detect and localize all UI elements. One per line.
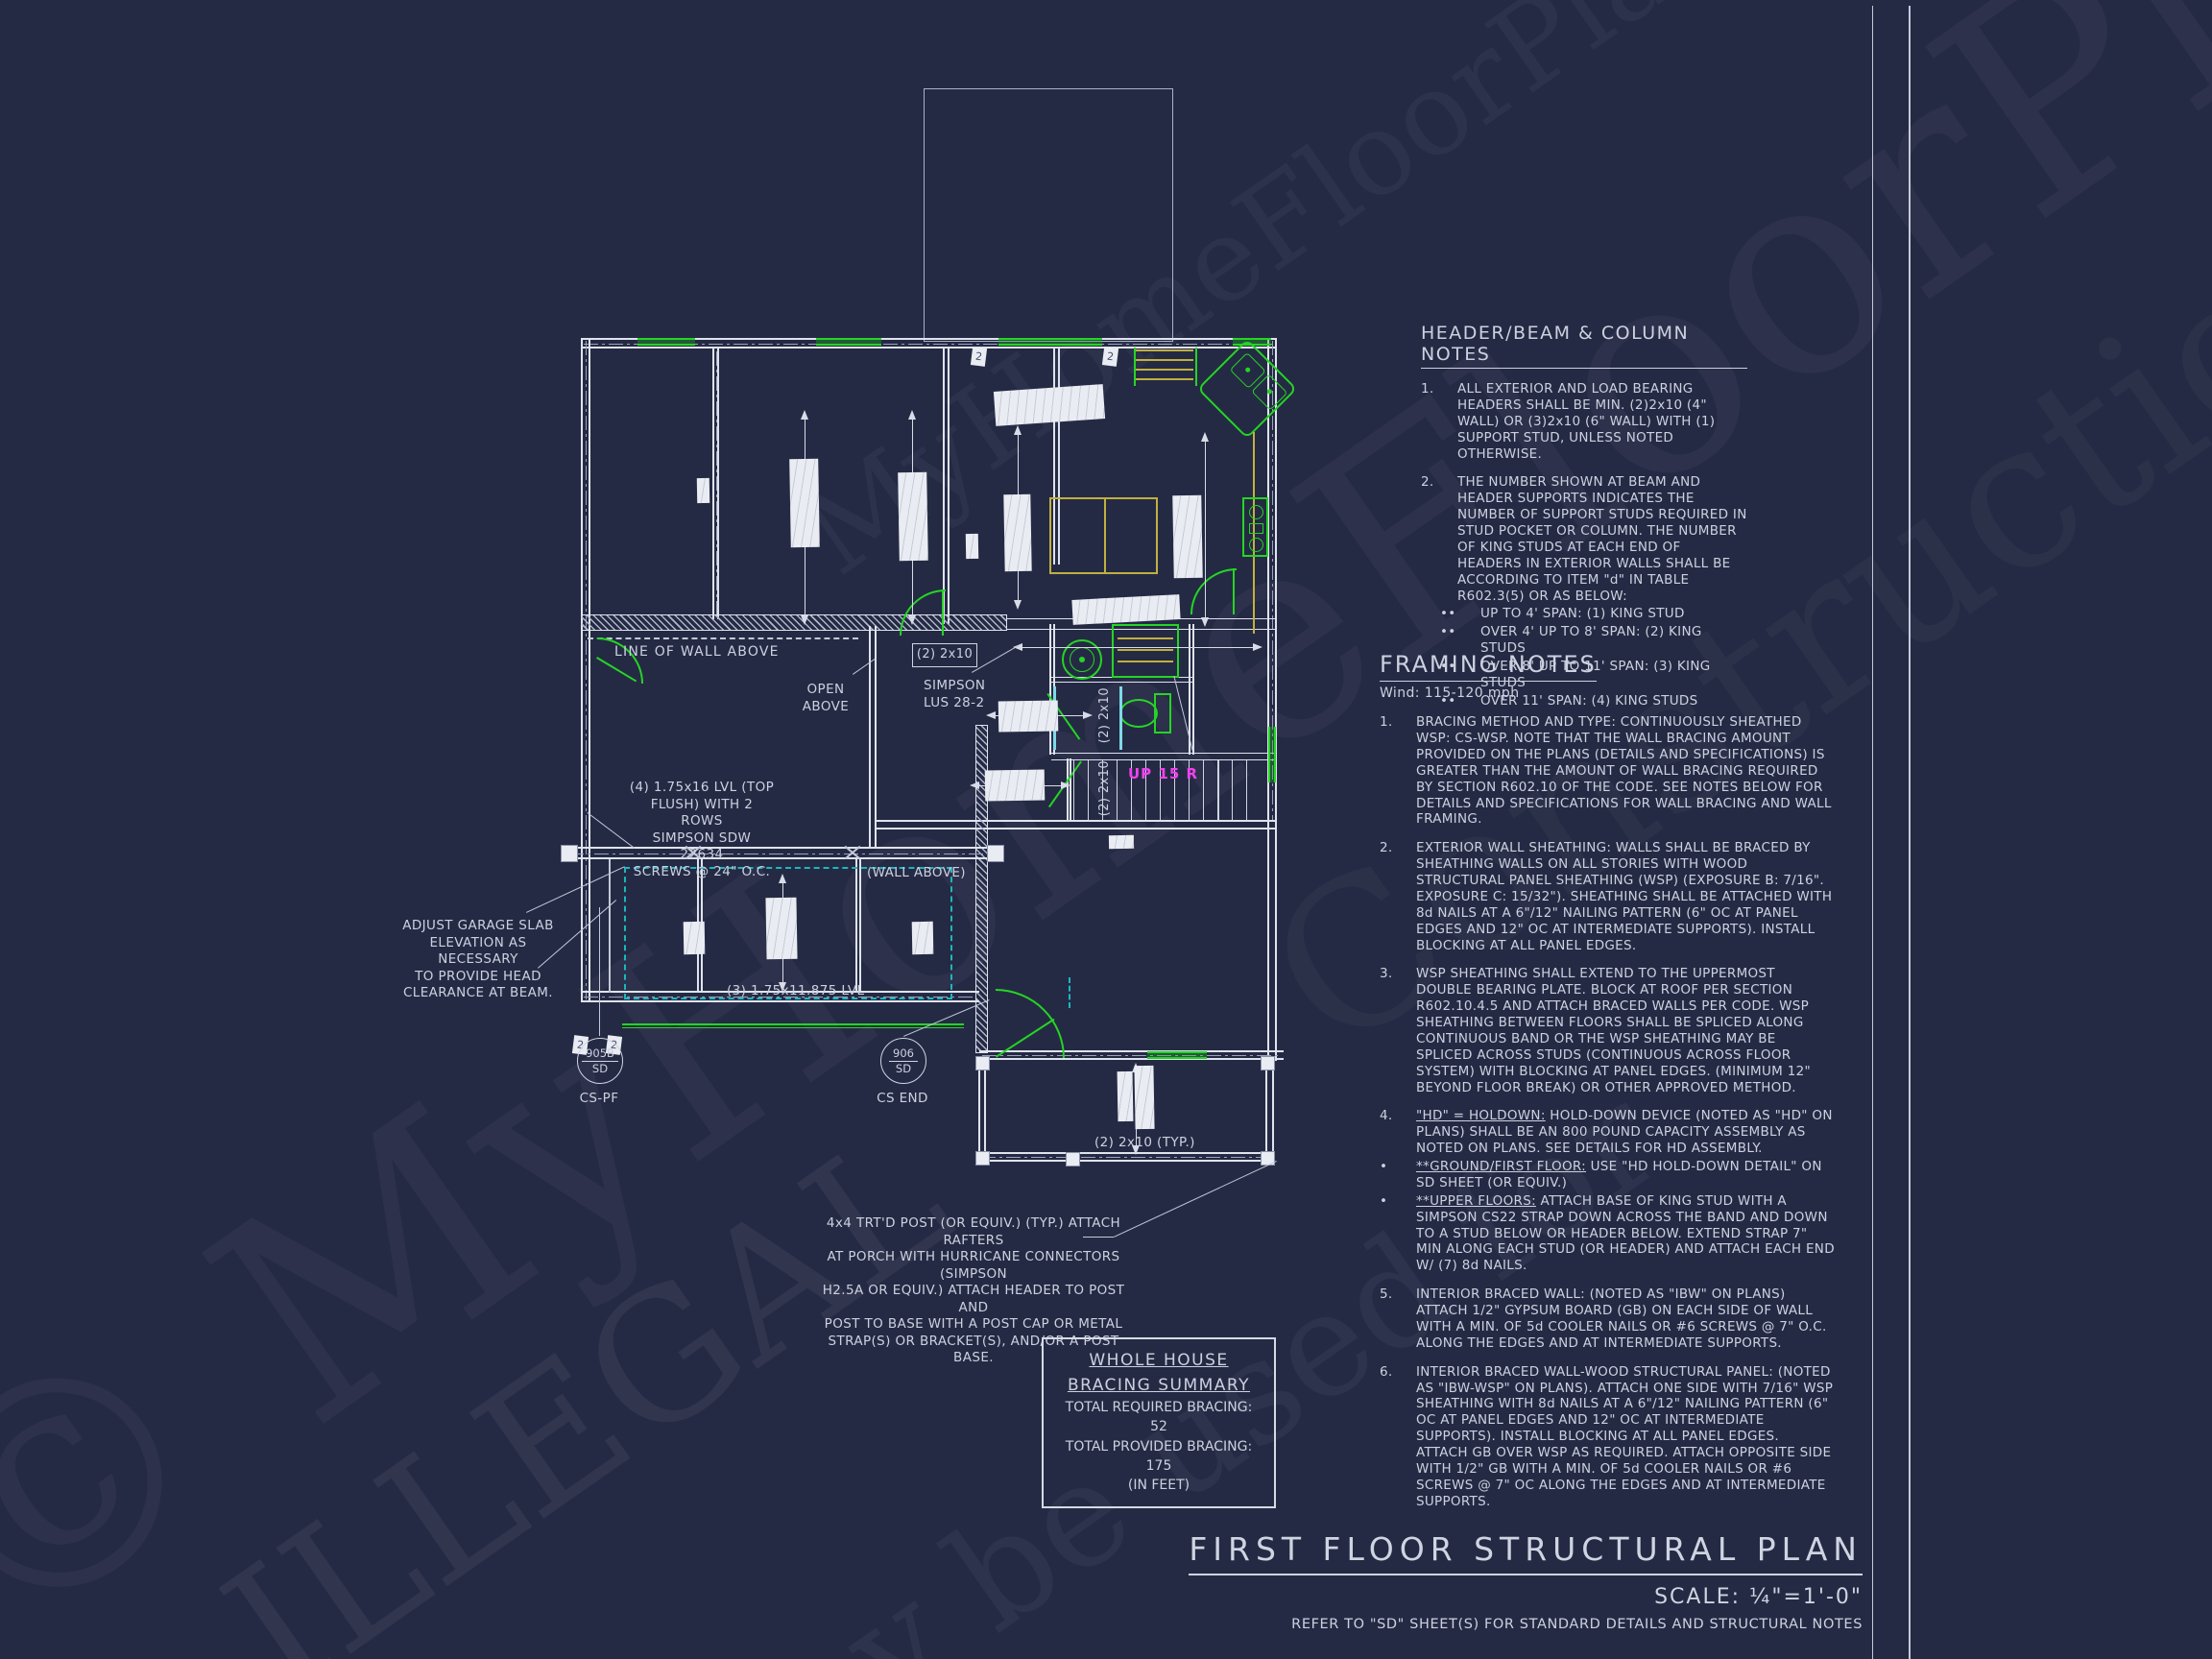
note-item: 3. WSP SHEATHING SHALL EXTEND TO THE UPP… — [1380, 966, 1835, 1095]
chimney-outline — [924, 88, 1173, 342]
stud-count: 2 — [974, 350, 983, 364]
bracing-summary-box: WHOLE HOUSE BRACING SUMMARY TOTAL REQUIR… — [1042, 1337, 1276, 1508]
window-header — [998, 338, 1102, 346]
wall-right-lower — [1267, 823, 1277, 1061]
note-number: 1. — [1380, 714, 1416, 828]
joist-span-arrow — [1205, 437, 1206, 622]
beam-end-post — [987, 845, 1004, 862]
bullet-marker: •• — [1440, 606, 1480, 622]
note-text: INTERIOR BRACED WALL: (NOTED AS "IBW" ON… — [1416, 1286, 1835, 1352]
lvl-label-block — [994, 384, 1105, 426]
label-up-15r: UP 15 R — [1128, 765, 1198, 784]
window-header — [637, 338, 695, 346]
stair-tread — [1232, 760, 1233, 820]
beam-end-post — [561, 845, 578, 862]
porch-post — [1261, 1056, 1275, 1070]
note-item: 4. "HD" = HOLDOWN: HOLD-DOWN DEVICE (NOT… — [1380, 1108, 1835, 1157]
note-item: 2. EXTERIOR WALL SHEATHING: WALLS SHALL … — [1380, 840, 1835, 953]
detail-bubble: 906 SD — [880, 1038, 926, 1084]
line-of-wall-above-dashed — [588, 637, 858, 639]
laundry-shelf — [1118, 649, 1173, 651]
label-garage-slab-note: ADJUST GARAGE SLAB ELEVATION AS NECESSAR… — [396, 918, 561, 1002]
note-text: BRACING METHOD AND TYPE: CONTINUOUSLY SH… — [1416, 714, 1835, 828]
label-2x10-typ: (2) 2x10 (TYP.) — [1094, 1135, 1195, 1152]
bullet-lead: **GROUND/FIRST FLOOR: — [1416, 1159, 1586, 1174]
stair-tread — [1073, 760, 1074, 820]
washer — [1062, 639, 1102, 680]
wall-tick-block — [697, 478, 709, 503]
note-text: "HD" = HOLDOWN: HOLD-DOWN DEVICE (NOTED … — [1416, 1108, 1835, 1157]
sheet-refer-note: REFER TO "SD" SHEET(S) FOR STANDARD DETA… — [1189, 1617, 1863, 1632]
label-2x10-vertical: (2) 2x10 — [1097, 760, 1114, 816]
detail-number: 905B — [582, 1046, 618, 1061]
detail-label: CS END — [868, 1091, 937, 1108]
window-header — [816, 338, 881, 346]
pocket-door — [1119, 686, 1122, 750]
stair-tread — [1136, 369, 1193, 371]
label-wall-above: (WALL ABOVE) — [867, 865, 966, 882]
stud-count-square: 2 — [1102, 347, 1118, 367]
porch-post — [1066, 1152, 1080, 1166]
bullet-text: **UPPER FLOORS: ATTACH BASE OF KING STUD… — [1416, 1193, 1835, 1274]
note-lead: "HD" = HOLDOWN: — [1416, 1108, 1546, 1123]
joist-label-block — [684, 922, 706, 954]
note-number: 2. — [1380, 840, 1416, 953]
note-number: 1. — [1421, 381, 1457, 462]
wall-centerline — [981, 1157, 1271, 1158]
framing-notes: FRAMING NOTES Wind: 115-120 mph 1. BRACI… — [1380, 651, 1835, 1510]
header-notes-title: HEADER/BEAM & COLUMN NOTES — [1421, 323, 1747, 369]
bracing-unit: (IN FEET) — [1057, 1476, 1261, 1495]
wall-interior — [1051, 753, 1277, 760]
wall-above-dashed-segment — [1069, 977, 1072, 1008]
wall-porch-bottom — [978, 1152, 1274, 1162]
note-number: 3. — [1380, 966, 1416, 1095]
leader-line — [587, 812, 635, 849]
note-text: THE NUMBER SHOWN AT BEAM AND HEADER SUPP… — [1457, 474, 1747, 604]
leader-line — [1114, 1161, 1277, 1238]
island-divider — [1104, 499, 1106, 572]
label-open-above: OPEN ABOVE — [799, 682, 853, 715]
note-number: 2. — [1421, 474, 1457, 604]
title-block: FIRST FLOOR STRUCTURAL PLAN SCALE: ¼"=1'… — [1189, 1530, 1863, 1632]
note-number: 4. — [1380, 1108, 1416, 1157]
stair-tread — [1246, 760, 1247, 820]
note-bullet: •• UP TO 4' SPAN: (1) KING STUD — [1440, 606, 1747, 622]
framing-notes-title: FRAMING NOTES — [1380, 651, 1597, 682]
porch-post — [975, 1056, 990, 1070]
wall-interior — [875, 820, 1277, 829]
kitchen-island — [1049, 497, 1158, 574]
label-lvl-garage-beam: (3) 1.75x11.875 LVL — [727, 983, 864, 1000]
bracing-required: TOTAL REQUIRED BRACING: 52 — [1057, 1398, 1261, 1437]
wall-interior — [712, 349, 719, 619]
joist-span-arrow — [1018, 647, 1258, 648]
bullet-marker: • — [1380, 1159, 1416, 1191]
laundry-unit — [1112, 624, 1179, 678]
bullet-marker: • — [1380, 1193, 1416, 1274]
laundry-shelf — [1118, 661, 1173, 662]
joist-label-block — [1134, 1066, 1154, 1129]
wall-centerline — [716, 351, 717, 616]
label-2x10: (2) 2x10 — [917, 647, 973, 663]
wall-tick-block — [966, 534, 978, 559]
toilet-bowl — [1119, 699, 1158, 728]
joist-label-block — [789, 459, 820, 548]
porch-post — [975, 1151, 990, 1166]
joist-label-block — [1172, 495, 1202, 579]
leader-line — [599, 907, 600, 1036]
stair-stringer — [1134, 348, 1136, 386]
note-item: 2. THE NUMBER SHOWN AT BEAM AND HEADER S… — [1421, 474, 1747, 604]
note-item: 5. INTERIOR BRACED WALL: (NOTED AS "IBW"… — [1380, 1286, 1835, 1352]
note-text: EXTERIOR WALL SHEATHING: WALLS SHALL BE … — [1416, 840, 1835, 953]
note-number: 5. — [1380, 1286, 1416, 1352]
label-2x10-vertical: (2) 2x10 — [1097, 687, 1114, 743]
burner — [1249, 505, 1263, 519]
note-number: 6. — [1380, 1364, 1416, 1510]
stair-tread — [1088, 760, 1089, 820]
garage-door-header — [622, 1023, 964, 1028]
wall-tick-block — [1109, 835, 1134, 849]
note-text: ALL EXTERIOR AND LOAD BEARING HEADERS SH… — [1457, 381, 1747, 462]
sheet: MyHomeFloorPlans.com © MyHomeFloorPlans … — [0, 0, 2212, 1659]
joist-label-block — [985, 769, 1046, 801]
bracing-title-line1: WHOLE HOUSE — [1057, 1349, 1261, 1374]
door-header — [1147, 1051, 1207, 1059]
note-item: 1. BRACING METHOD AND TYPE: CONTINUOUSLY… — [1380, 714, 1835, 828]
laundry-shelf — [1118, 637, 1173, 639]
wall-interior — [943, 349, 950, 624]
stair-tread — [1136, 359, 1193, 361]
joist-label-block — [912, 922, 934, 954]
joist-label-block — [1118, 1071, 1134, 1121]
stair-stringer — [1195, 348, 1197, 386]
joist-label-block — [998, 700, 1059, 732]
washer-dot — [1079, 657, 1085, 662]
label-lvl-beam-note: (4) 1.75x16 LVL (TOP FLUSH) WITH 2 ROWS … — [629, 780, 775, 880]
sheet-title: FIRST FLOOR STRUCTURAL PLAN — [1189, 1530, 1863, 1575]
detail-label: CS-PF — [565, 1091, 634, 1108]
bracing-provided: TOTAL PROVIDED BRACING: 175 — [1057, 1437, 1261, 1477]
bracing-title-line2: BRACING SUMMARY — [1057, 1374, 1261, 1399]
stair-tread — [1217, 760, 1219, 820]
label-2x10-box: (2) 2x10 — [912, 643, 977, 667]
note-bullet: • **UPPER FLOORS: ATTACH BASE OF KING ST… — [1380, 1193, 1835, 1274]
detail-number: 906 — [889, 1046, 918, 1061]
detail-sheet: SD — [592, 1062, 608, 1075]
range — [1242, 497, 1268, 557]
toilet-tank — [1154, 693, 1171, 733]
note-bullet: • **GROUND/FIRST FLOOR: USE "HD HOLD-DOW… — [1380, 1159, 1835, 1191]
wall-stair-side — [1067, 758, 1071, 822]
detail-bubble: 905B SD — [577, 1038, 623, 1084]
window-header — [1268, 727, 1276, 782]
wall-porch-right — [1265, 1061, 1274, 1157]
burner — [1249, 538, 1263, 552]
range-center — [1249, 523, 1263, 534]
note-item: 1. ALL EXTERIOR AND LOAD BEARING HEADERS… — [1421, 381, 1747, 462]
stud-count-square: 2 — [971, 347, 987, 367]
bullet-lead: **UPPER FLOORS: — [1416, 1193, 1536, 1209]
detail-sheet: SD — [896, 1062, 911, 1075]
stair-tread — [1117, 760, 1118, 820]
label-line-of-wall-above: LINE OF WALL ABOVE — [614, 643, 780, 661]
bullet-text: UP TO 4' SPAN: (1) KING STUD — [1480, 606, 1747, 622]
garage-stud-line — [609, 858, 611, 993]
label-simpson-lus: SIMPSON LUS 28-2 — [924, 678, 985, 711]
joist-label-block — [898, 472, 928, 562]
stud-count: 2 — [1106, 350, 1115, 364]
note-text: INTERIOR BRACED WALL-WOOD STRUCTURAL PAN… — [1416, 1364, 1835, 1510]
joist-label-block — [765, 898, 797, 960]
stair-tread — [1136, 349, 1193, 351]
framing-wind: Wind: 115-120 mph — [1380, 685, 1835, 702]
kitchen-sink — [1197, 339, 1298, 440]
sheet-scale: SCALE: ¼"=1'-0" — [1189, 1585, 1863, 1609]
bullet-text: **GROUND/FIRST FLOOR: USE "HD HOLD-DOWN … — [1416, 1159, 1835, 1191]
note-text: WSP SHEATHING SHALL EXTEND TO THE UPPERM… — [1416, 966, 1835, 1095]
stair-tread — [1203, 760, 1204, 820]
note-item: 6. INTERIOR BRACED WALL-WOOD STRUCTURAL … — [1380, 1364, 1835, 1510]
joist-label-block — [1003, 494, 1031, 571]
stair-tread — [1136, 378, 1193, 380]
